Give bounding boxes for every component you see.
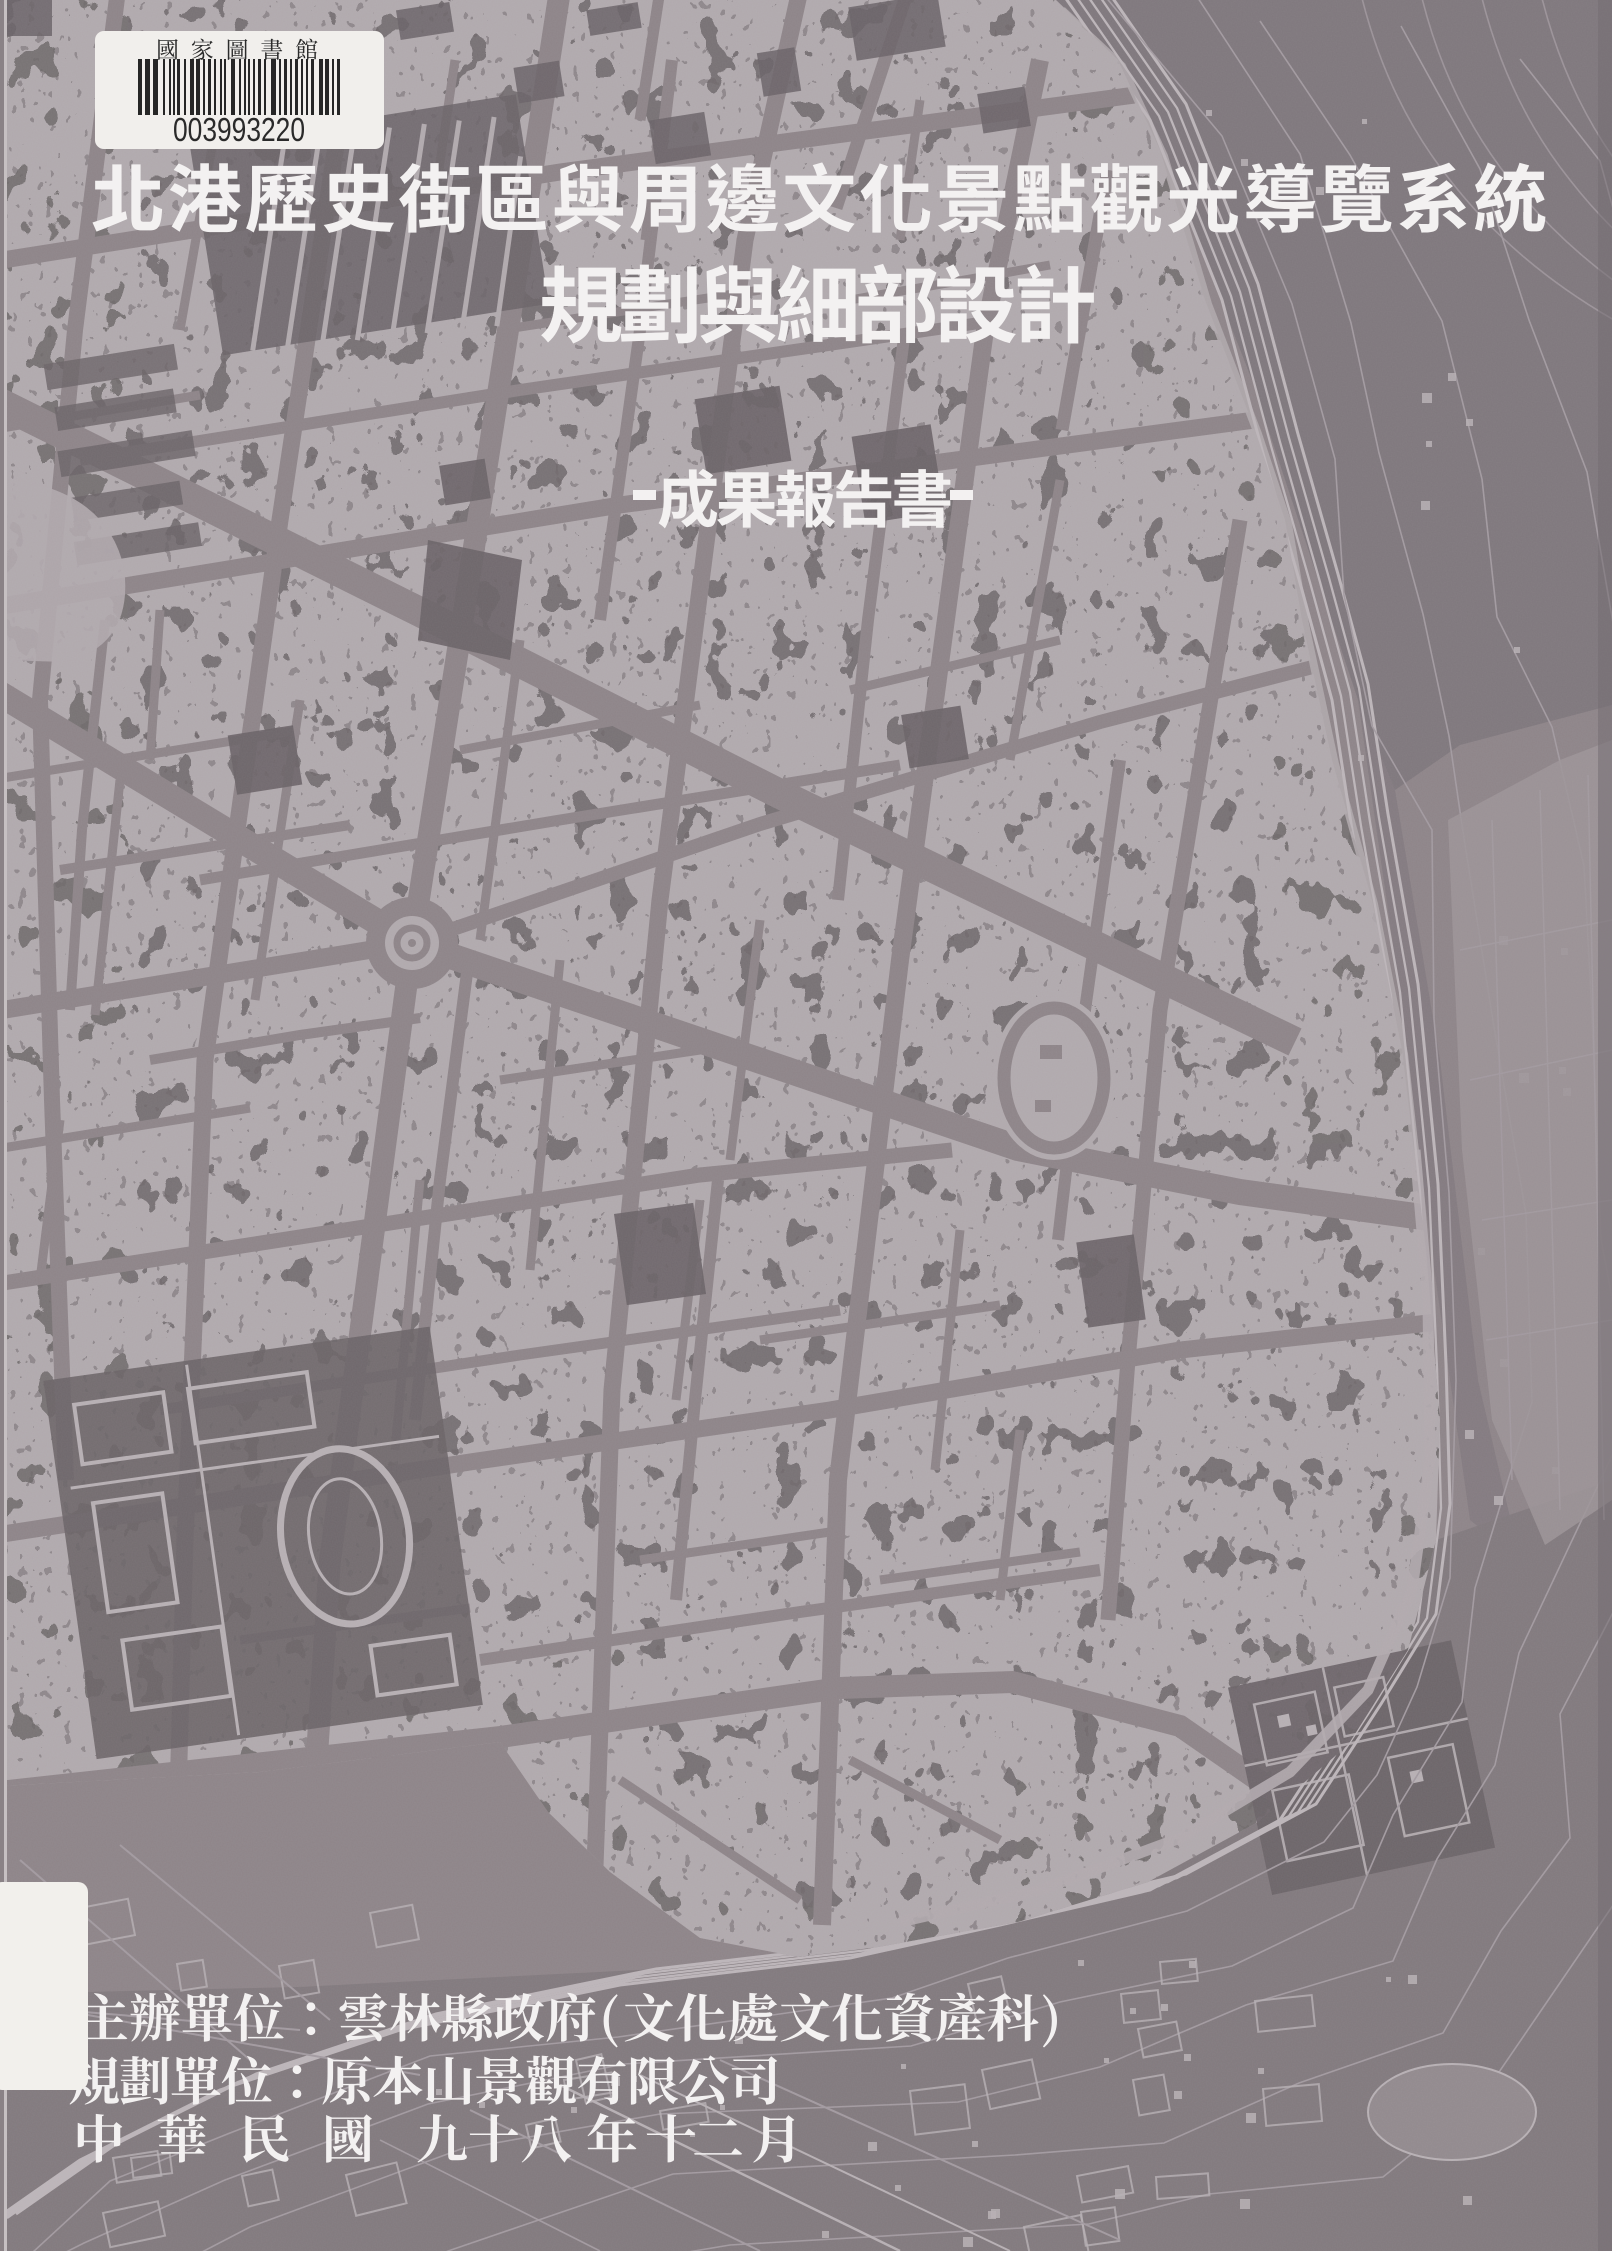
svg-text:003993220: 003993220	[173, 111, 305, 148]
